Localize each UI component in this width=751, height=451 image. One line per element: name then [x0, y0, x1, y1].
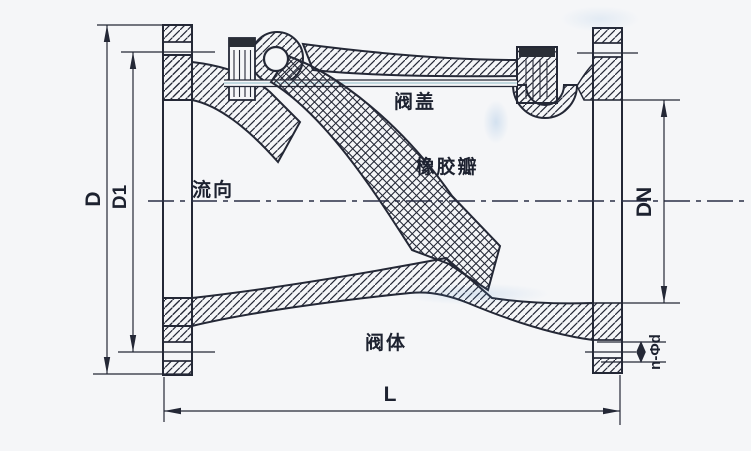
bonnet-bolt-cap [519, 48, 555, 57]
dim-DN-label: DN [633, 187, 656, 217]
dim-L-label: L [384, 383, 397, 406]
rubber-sheet-edge [224, 80, 517, 87]
label-flow-direction: 流向 [192, 178, 234, 201]
label-rubber-flap: 橡胶瓣 [415, 155, 478, 178]
left-flange [163, 25, 192, 375]
dim-D1-label: D1 [110, 184, 131, 209]
dim-D-label: D [82, 191, 105, 206]
valve-body-bottom-wall [163, 258, 593, 340]
check-valve-section-drawing: D D1 DN L n-Φd [0, 0, 751, 451]
label-bonnet: 阀盖 [394, 90, 436, 113]
hinge-bolt [229, 38, 255, 100]
label-valve-body: 阀体 [365, 331, 407, 354]
bottom-wall-shape [163, 258, 593, 340]
bolt-hole-diamond-marker [636, 341, 646, 363]
dim-bolt-holes-label: n-Φd [647, 334, 664, 370]
hinge-pin-hole [264, 47, 288, 71]
top-right-wall-connector [577, 64, 593, 100]
hinge-bolt-cap [229, 38, 255, 47]
drawing-sheet: D D1 DN L n-Φd [0, 0, 751, 451]
bonnet-wedge [303, 44, 517, 76]
